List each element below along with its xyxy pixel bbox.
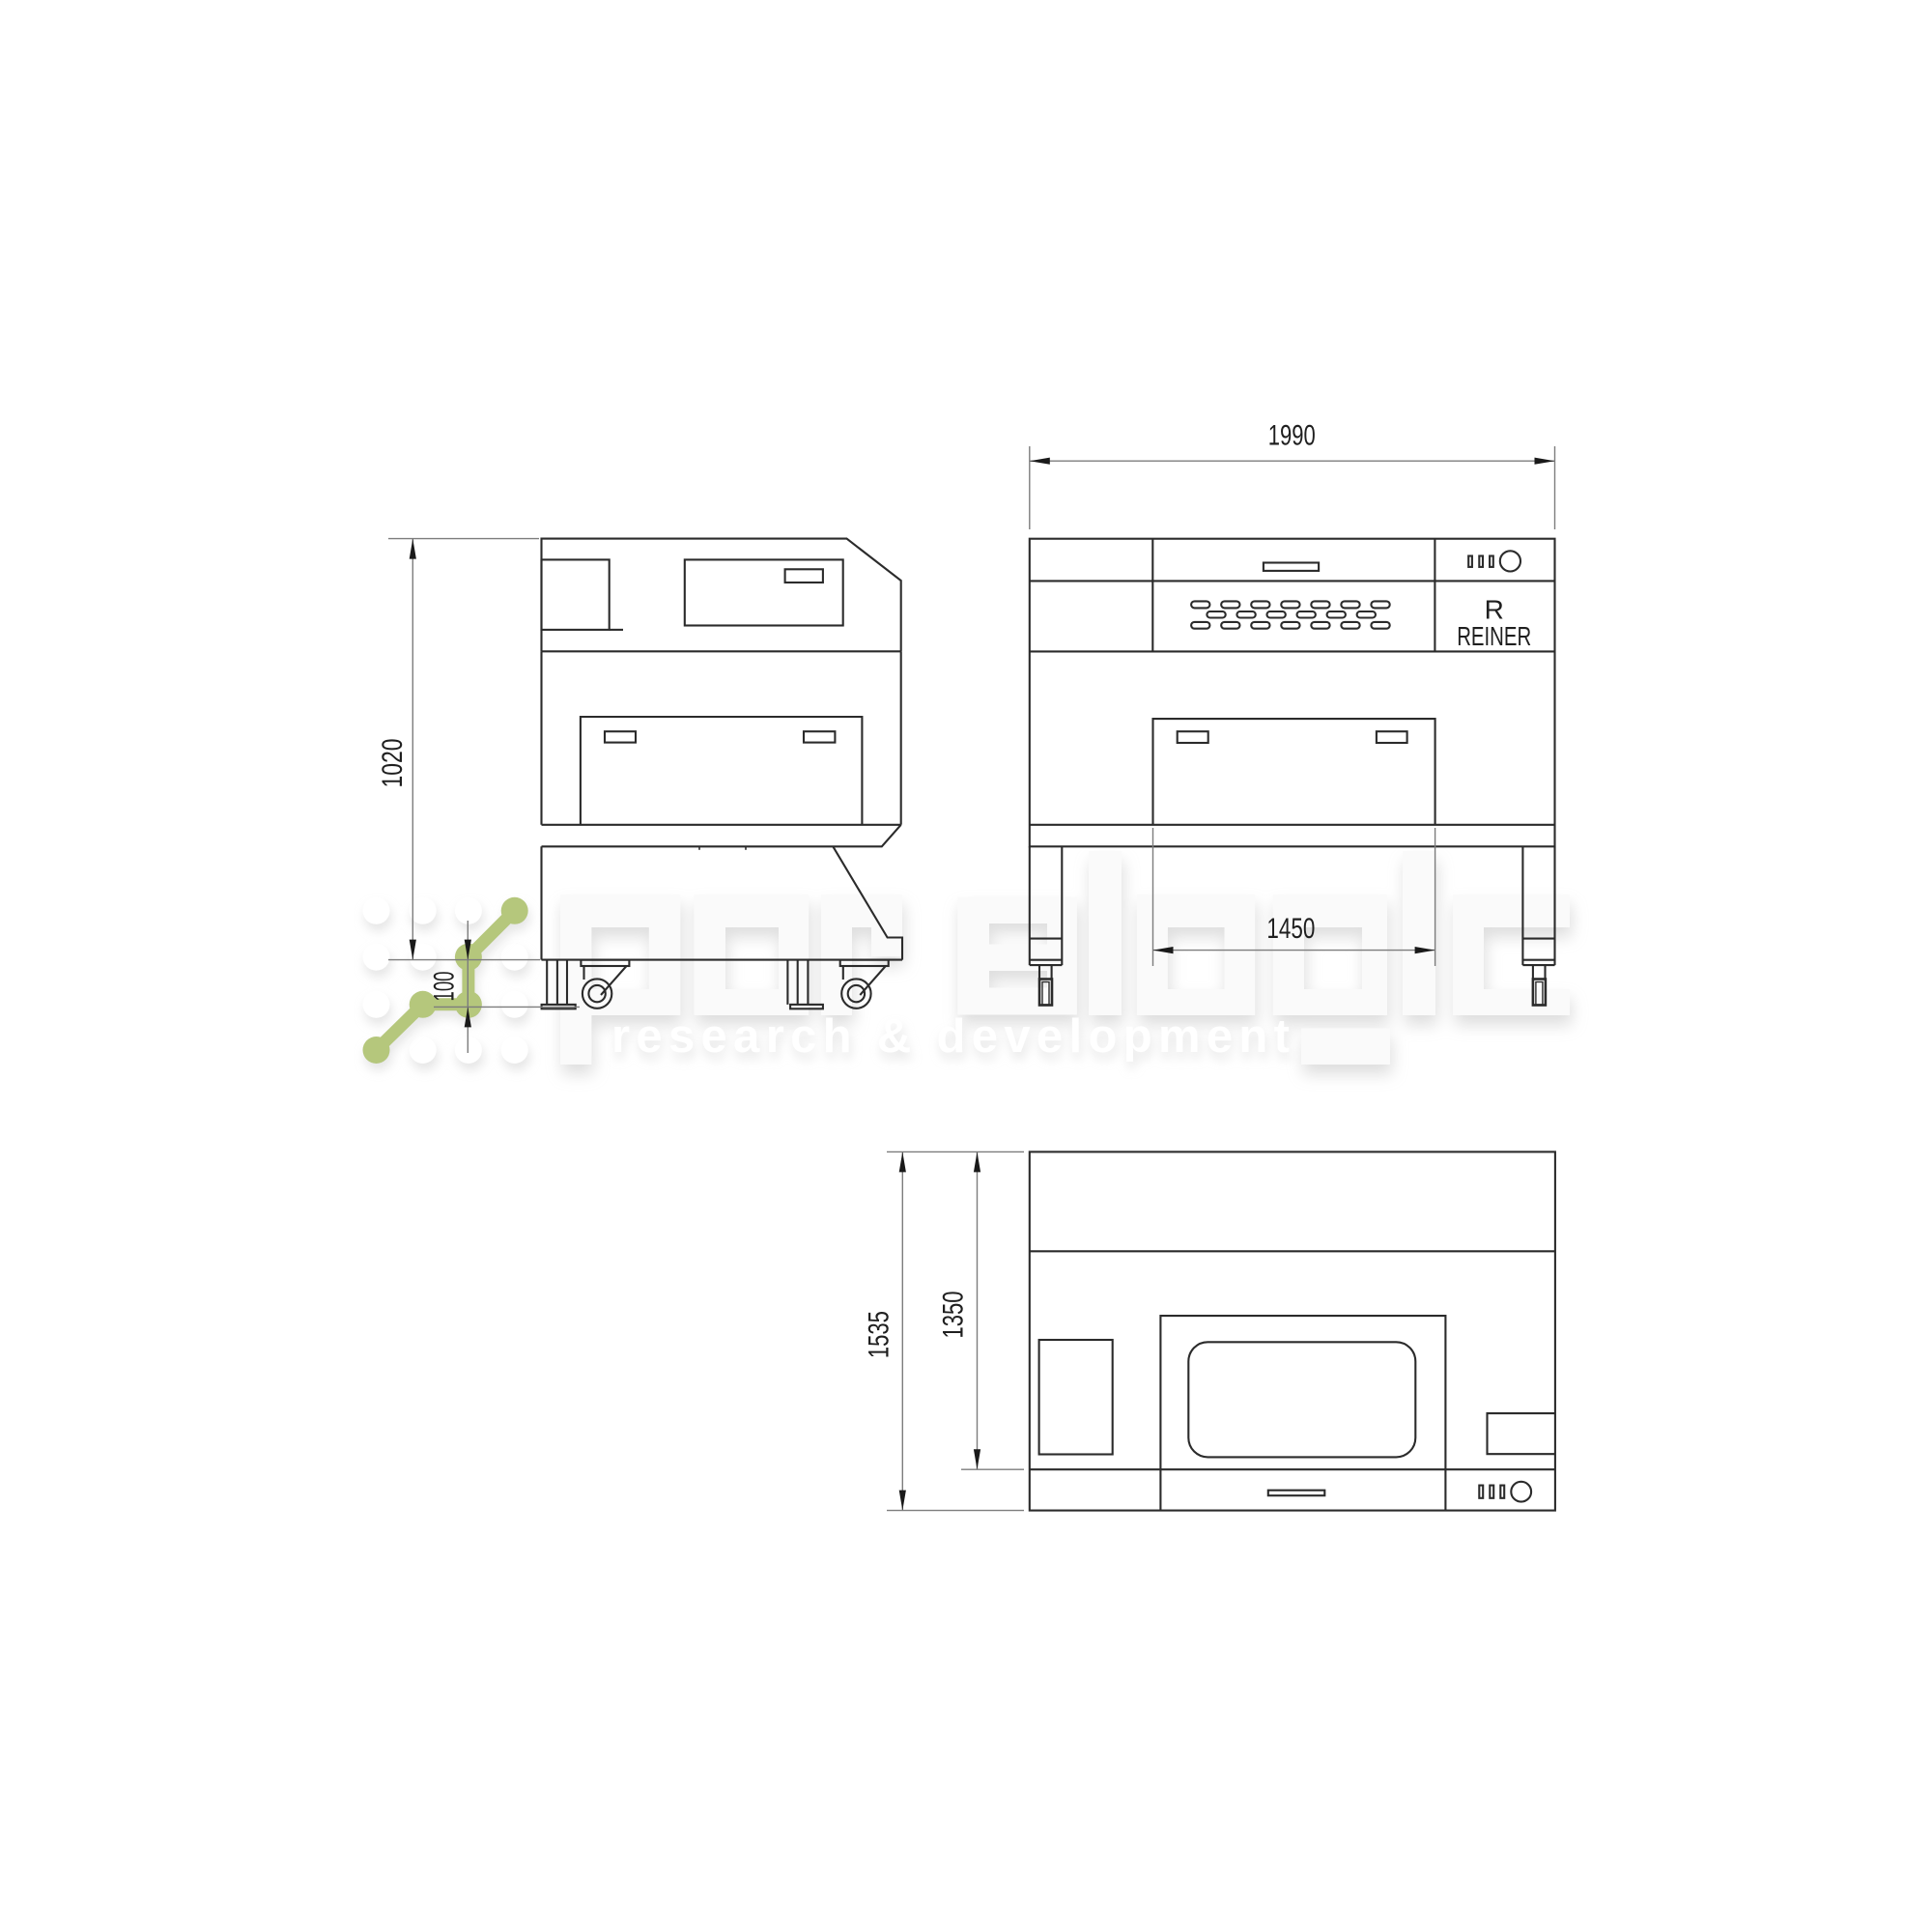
svg-text:1020: 1020 xyxy=(377,739,409,788)
svg-text:REINER: REINER xyxy=(1457,621,1531,651)
svg-text:R: R xyxy=(1485,595,1504,625)
svg-text:1535: 1535 xyxy=(864,1311,895,1358)
svg-text:1350: 1350 xyxy=(938,1292,970,1339)
svg-text:research & development: research & development xyxy=(611,1010,1295,1063)
svg-text:1990: 1990 xyxy=(1268,419,1316,451)
svg-text:1450: 1450 xyxy=(1266,913,1315,945)
svg-text:100: 100 xyxy=(428,972,460,1002)
